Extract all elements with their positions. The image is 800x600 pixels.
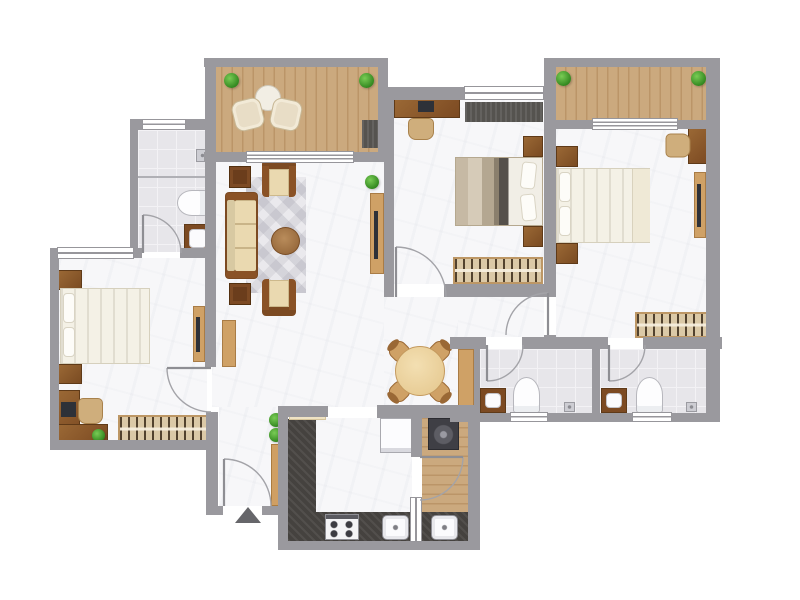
balcony-sliding-door	[246, 151, 354, 163]
wash-basin	[601, 388, 627, 413]
armchair-arm	[262, 279, 269, 310]
wall	[186, 119, 207, 130]
plant-icon	[691, 71, 706, 86]
utility-sink	[431, 515, 458, 540]
wall	[444, 284, 556, 297]
bedroom-left-window	[57, 247, 134, 259]
wall	[522, 337, 608, 349]
wall	[556, 120, 592, 129]
wall	[450, 413, 510, 422]
armchair-cushion	[269, 169, 289, 196]
tv-living	[374, 211, 378, 259]
wardrobe-left	[118, 415, 210, 443]
washing-machine	[428, 418, 459, 450]
shower-divider	[138, 176, 207, 178]
side-table	[229, 283, 251, 305]
sofa-cushions	[235, 200, 256, 271]
tv-bedroom-right	[697, 184, 701, 227]
desk-monitor-icon	[418, 101, 434, 112]
basin-bowl	[606, 393, 622, 408]
wall	[204, 58, 388, 67]
pillow	[559, 172, 571, 202]
floor-plan-canvas	[0, 0, 800, 600]
pillow	[63, 293, 75, 323]
sofa-backrest	[227, 200, 235, 271]
wall	[204, 152, 246, 162]
nightstand	[58, 364, 82, 384]
nightstand	[556, 243, 578, 264]
armchair-arm	[289, 166, 296, 197]
desk-chair	[78, 398, 103, 424]
wall	[706, 58, 720, 422]
desk-chair	[408, 118, 434, 140]
plant-icon	[556, 71, 571, 86]
wall	[278, 406, 288, 549]
desk-monitor-icon	[61, 402, 76, 417]
pillow	[520, 161, 538, 189]
wardrobe-right	[635, 312, 708, 338]
toilet	[177, 190, 207, 216]
wall	[206, 412, 218, 515]
side-table	[229, 166, 251, 188]
balcony-right-sliding-door	[592, 118, 678, 130]
nightstand	[523, 226, 543, 247]
desk-right	[688, 128, 708, 164]
pillow	[520, 193, 538, 221]
kitchen-utility-window	[410, 497, 422, 542]
armchair-arm	[289, 279, 296, 310]
wall	[468, 413, 480, 549]
wall	[130, 119, 138, 258]
bed-runner	[632, 169, 650, 242]
bathroom-window	[142, 119, 186, 130]
kitchen-sink	[382, 515, 409, 540]
wall	[205, 58, 216, 367]
wall	[206, 506, 223, 515]
toilet	[513, 377, 540, 413]
floor-drain-icon	[564, 402, 575, 412]
armchair-arm	[262, 166, 269, 197]
balcony-top-right-deck	[556, 66, 706, 120]
round-dining-table	[395, 346, 445, 396]
wall	[672, 413, 720, 422]
floor-drain-icon	[686, 402, 697, 412]
wall	[180, 248, 216, 258]
nightstand	[523, 136, 543, 157]
wall	[411, 405, 422, 457]
ensuite-bathroom-window	[632, 412, 672, 422]
plant-icon	[365, 175, 379, 189]
three-seat-sofa	[225, 192, 258, 279]
wardrobe-middle	[453, 257, 543, 284]
wall	[384, 87, 464, 100]
wall	[678, 120, 706, 129]
wall	[450, 337, 486, 349]
common-bathroom-window	[510, 412, 548, 422]
wall	[643, 337, 722, 349]
refrigerator	[380, 418, 412, 453]
plant-icon	[359, 73, 374, 88]
bedroom-middle-window	[464, 86, 544, 100]
desk-chair	[666, 134, 691, 158]
wall	[592, 349, 600, 413]
wall	[548, 413, 632, 422]
gas-hob	[325, 514, 359, 540]
wall	[50, 248, 59, 450]
wall	[384, 87, 394, 297]
armchair	[262, 277, 296, 316]
armchair	[262, 160, 296, 199]
sofa-armrest	[226, 271, 257, 278]
wall	[278, 541, 480, 550]
window-mat	[465, 102, 543, 122]
sofa-armrest	[226, 193, 257, 200]
tall-cabinet-dining	[458, 349, 474, 413]
pillow	[559, 206, 571, 236]
wall	[134, 248, 142, 258]
wall	[544, 58, 556, 293]
tv-bedroom-left	[196, 317, 200, 352]
nightstand	[556, 146, 578, 167]
wash-basin	[480, 388, 506, 413]
nightstand	[58, 270, 82, 290]
tall-cabinet-living	[222, 320, 236, 367]
wall	[278, 406, 328, 417]
balcony-mat	[362, 120, 379, 148]
wall	[50, 440, 216, 450]
wall	[474, 349, 480, 413]
wall	[354, 152, 388, 162]
wall	[544, 58, 720, 67]
entrance-arrow-icon	[235, 507, 261, 523]
basin-bowl	[485, 393, 501, 408]
toilet	[636, 377, 663, 413]
coffee-table	[271, 227, 300, 255]
plant-icon	[224, 73, 239, 88]
armchair-cushion	[269, 280, 289, 307]
pillow	[63, 327, 75, 357]
